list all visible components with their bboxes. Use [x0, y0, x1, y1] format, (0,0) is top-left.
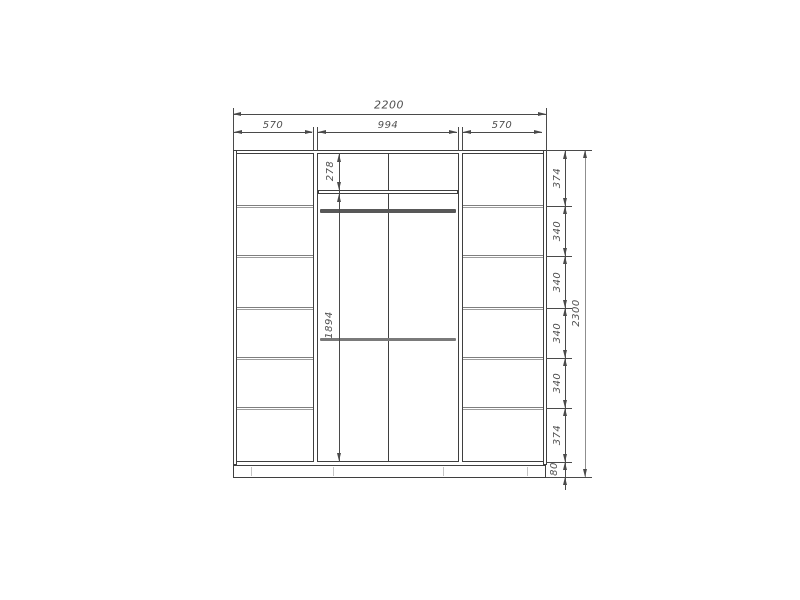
- extension-line: [546, 308, 572, 309]
- arrowhead: [563, 408, 567, 416]
- arrowhead: [234, 130, 242, 134]
- arrowhead: [233, 112, 241, 116]
- arrowhead: [563, 400, 567, 408]
- hanging-rail-lower: [320, 338, 456, 341]
- right-shelf: [463, 407, 543, 410]
- right-shelf: [463, 255, 543, 258]
- extension-line: [546, 206, 572, 207]
- dim-right-4-label: 340: [553, 323, 563, 344]
- extension-line: [458, 127, 459, 151]
- dim-right-3-label: 340: [553, 272, 563, 293]
- dim-middle-section-label: 994: [378, 121, 399, 131]
- left-shelf: [237, 357, 313, 360]
- dimension-line-left-section: [234, 132, 312, 133]
- plinth-base: [233, 465, 546, 478]
- arrowhead: [563, 454, 567, 462]
- arrowhead: [563, 151, 567, 159]
- dim-plinth-label: 80: [550, 462, 560, 476]
- arrowhead: [583, 469, 587, 477]
- arrowhead: [563, 206, 567, 214]
- dim-middle-main-label: 1894: [325, 311, 335, 338]
- extension-line: [546, 477, 592, 478]
- dim-left-section-label: 570: [263, 121, 284, 131]
- extension-line: [546, 358, 572, 359]
- dim-total-height-label: 2300: [572, 299, 582, 326]
- arrowhead: [534, 130, 542, 134]
- arrowhead: [563, 308, 567, 316]
- arrowhead: [563, 300, 567, 308]
- dim-middle-top-label: 278: [326, 161, 336, 182]
- right-shelf: [463, 205, 543, 208]
- arrowhead: [563, 350, 567, 358]
- right-shelf: [463, 357, 543, 360]
- arrowhead: [337, 182, 341, 190]
- arrowhead: [563, 248, 567, 256]
- center-divider: [388, 154, 389, 461]
- right-shelf: [463, 307, 543, 310]
- left-shelf: [237, 255, 313, 258]
- arrowhead: [449, 130, 457, 134]
- arrowhead: [318, 130, 326, 134]
- left-partition-wall: [313, 153, 318, 462]
- base-foot-mark: [443, 467, 444, 476]
- hanging-rail-upper: [320, 209, 456, 213]
- dim-right-2-label: 340: [553, 221, 563, 242]
- arrowhead: [563, 198, 567, 206]
- dimension-line-total-width: [233, 114, 546, 115]
- arrowhead: [563, 256, 567, 264]
- dim-right-section-label: 570: [492, 121, 513, 131]
- arrowhead: [337, 154, 341, 162]
- arrowhead: [463, 130, 471, 134]
- arrowhead: [583, 150, 587, 158]
- top-panel: [233, 150, 546, 154]
- extension-line: [313, 127, 314, 151]
- extension-line: [546, 108, 547, 150]
- arrowhead: [563, 358, 567, 366]
- dimension-line-right-section: [463, 132, 542, 133]
- arrowhead: [563, 477, 567, 485]
- dim-right-6-label: 374: [553, 425, 563, 446]
- dimension-line-total-height: [585, 150, 586, 477]
- left-shelf: [237, 407, 313, 410]
- base-foot-mark: [251, 467, 252, 476]
- dim-right-5-label: 340: [553, 373, 563, 394]
- extension-line: [546, 408, 572, 409]
- left-shelf: [237, 205, 313, 208]
- arrowhead: [563, 462, 567, 470]
- base-foot-mark: [527, 467, 528, 476]
- arrowhead: [538, 112, 546, 116]
- dimension-line-middle-section: [318, 132, 457, 133]
- arrowhead: [337, 194, 341, 202]
- left-shelf: [237, 307, 313, 310]
- extension-line: [546, 256, 572, 257]
- arrowhead: [337, 453, 341, 461]
- base-foot-mark: [333, 467, 334, 476]
- dim-total-width-label: 2200: [374, 100, 404, 111]
- arrowhead: [305, 130, 313, 134]
- dim-right-1-label: 374: [553, 168, 563, 189]
- wardrobe-dimension-drawing: 2200 570 994 570 278 1894 374 340 340 34…: [0, 0, 800, 600]
